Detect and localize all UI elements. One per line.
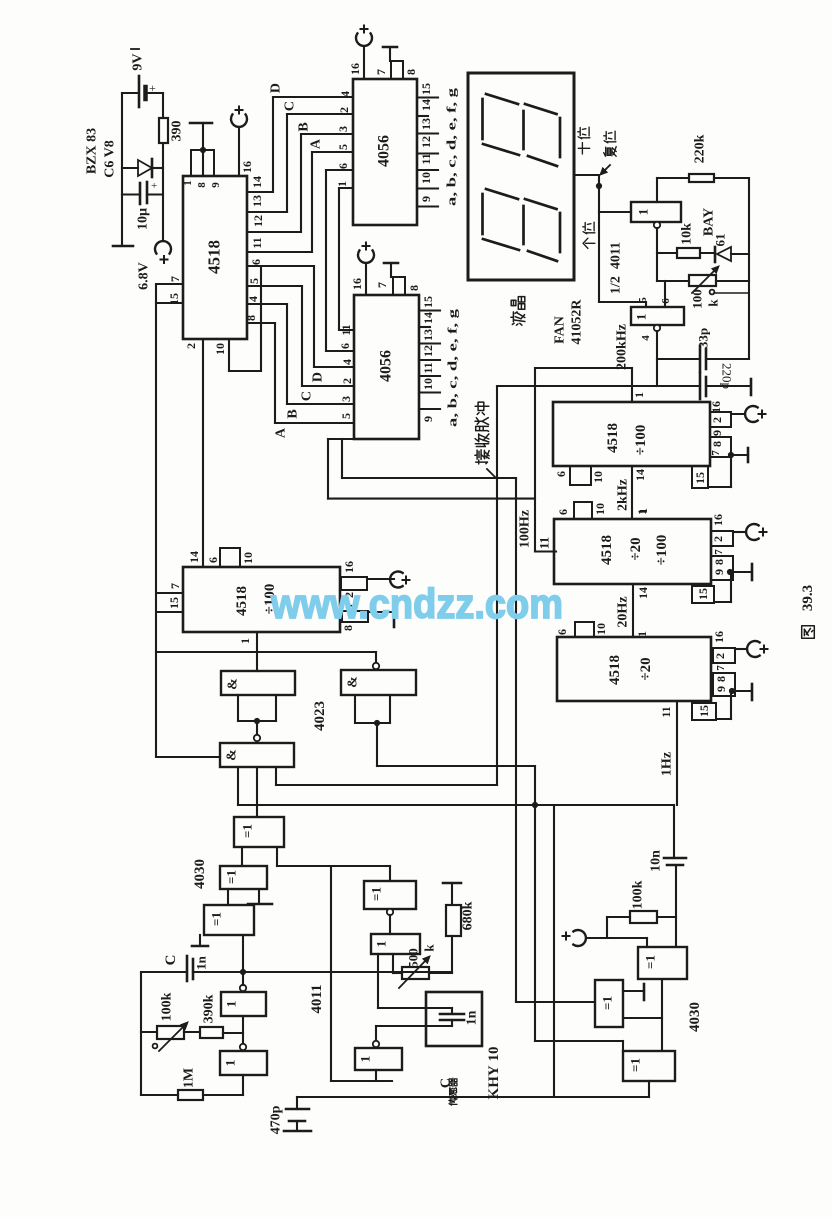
svg-text:÷100: ÷100 — [654, 535, 670, 566]
svg-text:10: 10 — [593, 503, 607, 515]
svg-text:a, b, c, d, e, f, g: a, b, c, d, e, f, g — [444, 87, 459, 206]
svg-text:9: 9 — [710, 430, 724, 436]
svg-text:10: 10 — [241, 552, 255, 564]
svg-text:+: + — [149, 81, 156, 95]
svg-text:2: 2 — [340, 378, 354, 384]
svg-text:470p: 470p — [269, 1105, 284, 1134]
svg-text:=1: =1 — [600, 996, 615, 1010]
svg-text:4: 4 — [640, 335, 652, 341]
svg-text:6: 6 — [249, 259, 263, 265]
svg-text:7: 7 — [168, 276, 182, 282]
svg-text:16: 16 — [342, 561, 356, 573]
svg-text:BAY: BAY — [702, 208, 717, 236]
svg-text:15: 15 — [697, 705, 711, 717]
svg-text:B: B — [286, 409, 301, 418]
svg-text:1: 1 — [374, 941, 389, 948]
svg-text:7: 7 — [374, 69, 388, 75]
svg-text:4518: 4518 — [605, 423, 621, 453]
svg-text:11: 11 — [419, 153, 433, 164]
svg-text:C: C — [283, 101, 298, 111]
svg-text:16: 16 — [240, 161, 254, 173]
svg-text:220k: 220k — [693, 134, 708, 163]
svg-text:9: 9 — [714, 686, 728, 692]
svg-text:4023: 4023 — [312, 701, 328, 731]
svg-text:3: 3 — [336, 126, 350, 132]
svg-text:15: 15 — [696, 588, 710, 600]
svg-text:10: 10 — [591, 471, 605, 483]
svg-text:9: 9 — [419, 196, 433, 202]
svg-text:16: 16 — [712, 631, 726, 643]
svg-text:2: 2 — [713, 653, 727, 659]
svg-text:13: 13 — [421, 329, 435, 341]
svg-text:10: 10 — [421, 378, 435, 390]
svg-text:15: 15 — [167, 293, 181, 305]
svg-text:16: 16 — [711, 514, 725, 526]
svg-text:680k: 680k — [461, 901, 476, 930]
svg-text:=1: =1 — [628, 1058, 643, 1072]
svg-text:8: 8 — [244, 315, 258, 321]
svg-text:200kHz: 200kHz — [615, 324, 630, 370]
svg-text:14: 14 — [419, 99, 433, 111]
svg-text:1M: 1M — [182, 1068, 197, 1088]
svg-text:6: 6 — [556, 509, 570, 515]
svg-text:2: 2 — [337, 107, 351, 113]
svg-text:11: 11 — [659, 706, 673, 717]
svg-text:4056: 4056 — [378, 350, 395, 382]
svg-text:D: D — [311, 372, 326, 382]
svg-text:7: 7 — [375, 282, 389, 288]
svg-text:10: 10 — [594, 623, 608, 635]
svg-text:9: 9 — [421, 416, 435, 422]
svg-text:1: 1 — [636, 209, 651, 216]
svg-text:8: 8 — [712, 559, 726, 565]
svg-text:2: 2 — [710, 417, 724, 423]
svg-text:1: 1 — [634, 314, 649, 321]
svg-text:=1: =1 — [240, 824, 255, 838]
svg-text:9: 9 — [210, 182, 222, 188]
svg-text:6.8V: 6.8V — [137, 262, 152, 290]
svg-text:8: 8 — [404, 69, 418, 75]
svg-text:10µ: 10µ — [136, 208, 151, 230]
svg-text:www.cndzz.com: www.cndzz.com — [270, 580, 563, 627]
svg-text:3: 3 — [339, 396, 353, 402]
svg-text:100k: 100k — [160, 992, 175, 1021]
svg-text:39.3: 39.3 — [800, 585, 816, 611]
svg-text:=1: =1 — [209, 912, 224, 926]
svg-text:1: 1 — [223, 1060, 238, 1067]
svg-text:41052R: 41052R — [570, 299, 585, 345]
svg-text:1: 1 — [635, 631, 649, 637]
svg-text:13: 13 — [250, 195, 264, 207]
svg-text:390k: 390k — [202, 994, 217, 1023]
svg-text:FAN: FAN — [553, 316, 568, 344]
svg-text:4030: 4030 — [687, 1002, 703, 1032]
svg-text:12: 12 — [421, 345, 435, 357]
svg-text:1: 1 — [335, 181, 349, 187]
svg-text:10n: 10n — [649, 850, 664, 872]
svg-text:500: 500 — [406, 948, 421, 968]
svg-text:6: 6 — [338, 343, 352, 349]
svg-text:1/2 4011: 1/2 4011 — [609, 242, 624, 294]
svg-text:5: 5 — [247, 278, 261, 284]
svg-text:5: 5 — [339, 413, 353, 419]
svg-text:1: 1 — [224, 1001, 239, 1008]
svg-text:BZX 83: BZX 83 — [85, 128, 100, 174]
svg-text:&: & — [346, 676, 361, 688]
svg-text:14: 14 — [421, 312, 435, 324]
svg-text:5: 5 — [637, 297, 649, 303]
svg-text:100: 100 — [690, 289, 705, 309]
svg-text:8: 8 — [714, 676, 728, 682]
svg-text:4056: 4056 — [376, 135, 393, 167]
svg-text:7: 7 — [168, 583, 182, 589]
svg-text:1: 1 — [635, 509, 649, 515]
svg-text:=1: =1 — [224, 870, 239, 884]
svg-text:15: 15 — [693, 472, 707, 484]
svg-text:2kHz: 2kHz — [616, 479, 631, 511]
svg-text:7: 7 — [713, 549, 725, 555]
svg-text:k: k — [706, 299, 721, 307]
svg-text:10: 10 — [419, 172, 433, 184]
svg-text:15: 15 — [167, 597, 181, 609]
svg-text:1n: 1n — [194, 955, 209, 970]
svg-text:16: 16 — [348, 63, 362, 75]
svg-text:20Hz: 20Hz — [616, 596, 631, 627]
svg-text:&: & — [226, 678, 241, 690]
svg-text:6: 6 — [206, 557, 220, 563]
svg-text:B: B — [297, 122, 312, 131]
svg-text:10k: 10k — [680, 223, 695, 245]
svg-text:8: 8 — [710, 441, 724, 447]
svg-text:33p: 33p — [696, 328, 711, 348]
svg-text:10: 10 — [213, 343, 227, 355]
svg-text:A: A — [274, 427, 289, 438]
svg-text:12: 12 — [419, 136, 433, 148]
svg-text:=1: =1 — [369, 887, 384, 901]
svg-text:12: 12 — [251, 215, 265, 227]
svg-text:7: 7 — [715, 665, 727, 671]
svg-text:100Hz: 100Hz — [518, 510, 533, 548]
svg-text:14: 14 — [636, 587, 650, 599]
svg-text:4030: 4030 — [192, 859, 208, 889]
svg-text:1: 1 — [358, 1056, 373, 1063]
svg-text:2: 2 — [184, 343, 198, 349]
svg-text:4011: 4011 — [309, 984, 325, 1013]
svg-text:A: A — [309, 138, 324, 149]
svg-text:14: 14 — [187, 551, 201, 563]
svg-text:7: 7 — [710, 450, 722, 456]
svg-text:14: 14 — [633, 469, 647, 481]
svg-text:100k: 100k — [631, 880, 646, 909]
svg-text:15: 15 — [419, 83, 433, 95]
svg-text:4: 4 — [338, 91, 352, 97]
svg-text:a, b, c, d, e, f, g: a, b, c, d, e, f, g — [445, 308, 460, 427]
svg-text:11: 11 — [339, 324, 353, 335]
svg-text:&: & — [225, 749, 240, 761]
svg-text:9V: 9V — [131, 53, 146, 70]
svg-text:=1: =1 — [643, 955, 658, 969]
svg-text:11: 11 — [421, 362, 435, 373]
svg-text:14: 14 — [250, 176, 264, 188]
svg-text:+: + — [151, 180, 157, 192]
svg-text:÷20: ÷20 — [628, 537, 644, 560]
svg-text:9: 9 — [712, 569, 726, 575]
svg-text:6: 6 — [336, 163, 350, 169]
svg-text:k: k — [422, 944, 437, 952]
svg-text:5: 5 — [336, 144, 350, 150]
svg-text:6: 6 — [555, 629, 569, 635]
svg-text:1Hz: 1Hz — [660, 752, 675, 776]
svg-text:4518: 4518 — [205, 240, 224, 274]
svg-text:1n: 1n — [465, 1010, 480, 1025]
svg-text:61: 61 — [713, 234, 728, 247]
svg-text:390: 390 — [170, 121, 185, 142]
svg-text:8: 8 — [196, 182, 208, 188]
svg-text:4: 4 — [340, 359, 354, 365]
svg-text:16: 16 — [350, 278, 364, 290]
svg-text:C: C — [163, 955, 179, 966]
svg-text:8: 8 — [407, 285, 421, 291]
svg-text:÷100: ÷100 — [633, 425, 649, 456]
svg-text:D: D — [269, 83, 284, 93]
svg-text:C6 V8: C6 V8 — [103, 140, 118, 177]
svg-text:15: 15 — [421, 296, 435, 308]
svg-text:11: 11 — [537, 537, 552, 549]
svg-text:÷20: ÷20 — [638, 657, 654, 680]
svg-text:4518: 4518 — [234, 586, 250, 616]
svg-text:1: 1 — [182, 180, 194, 186]
svg-text:1: 1 — [238, 638, 252, 644]
svg-text:13: 13 — [419, 118, 433, 130]
svg-text:1: 1 — [632, 392, 646, 398]
svg-text:KHY 10: KHY 10 — [486, 1047, 502, 1100]
svg-text:6: 6 — [554, 471, 568, 477]
svg-text:4: 4 — [246, 296, 260, 302]
svg-text:C: C — [300, 391, 315, 401]
svg-text:4518: 4518 — [607, 655, 623, 685]
svg-text:11: 11 — [250, 237, 264, 248]
svg-text:4518: 4518 — [599, 535, 615, 565]
svg-text:2: 2 — [711, 536, 725, 542]
